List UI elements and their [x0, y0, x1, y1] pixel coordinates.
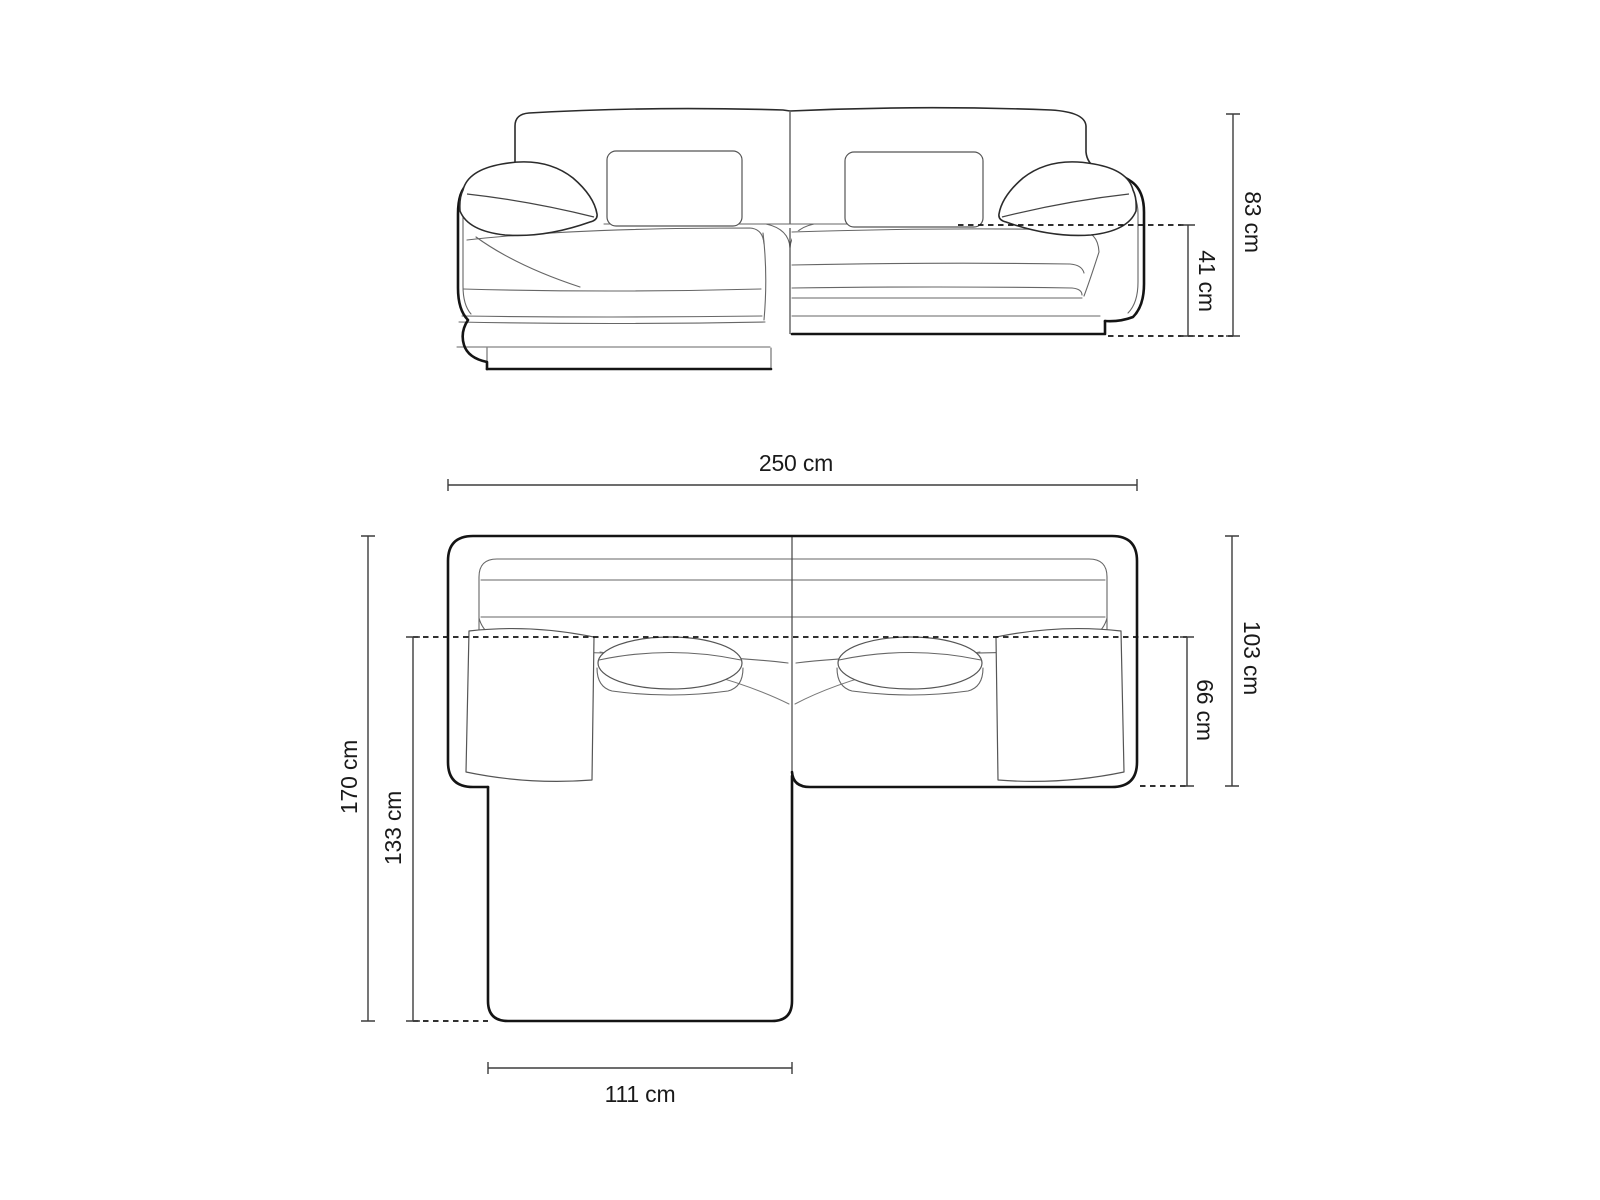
sofa-dimensions-diagram: 83 cm 41 cm	[0, 0, 1600, 1200]
dim-label-chaise-depth: 133 cm	[380, 791, 406, 865]
plan-back-cushion-right	[996, 629, 1124, 782]
dim-body-depth: 103 cm	[1225, 536, 1265, 786]
dim-overall-depth: 170 cm	[336, 536, 375, 1021]
dim-label-overall-depth: 170 cm	[336, 740, 362, 814]
dim-label-overall-width: 250 cm	[759, 450, 833, 476]
dim-chaise-depth: 133 cm	[380, 637, 420, 1021]
dim-seat-height: 41 cm	[1181, 225, 1220, 336]
dim-overall-width: 250 cm	[448, 450, 1137, 491]
right-base	[792, 316, 1105, 334]
sofa-dimension-diagram-page: 83 cm 41 cm	[0, 0, 1600, 1200]
chaise-seat-front	[462, 228, 766, 321]
dim-overall-height: 83 cm	[1226, 114, 1266, 336]
dim-chaise-width: 111 cm	[488, 1062, 792, 1107]
chaise-base	[457, 322, 771, 369]
front-elevation-view: 83 cm 41 cm	[457, 108, 1266, 369]
dim-label-seat-depth: 66 cm	[1192, 679, 1218, 741]
left-armrest-pillow	[460, 162, 597, 236]
dim-label-chaise-width: 111 cm	[605, 1081, 676, 1107]
top-plan-view: 250 cm 170 cm 133 cm 103 cm 66 cm 111 cm	[336, 450, 1265, 1107]
back-cushion-left	[607, 151, 742, 226]
dim-label-body-depth: 103 cm	[1239, 621, 1265, 695]
dim-label-overall-height: 83 cm	[1240, 191, 1266, 253]
dim-label-seat-height: 41 cm	[1194, 250, 1220, 312]
dim-seat-depth: 66 cm	[1180, 637, 1218, 786]
plan-back-cushion-left	[466, 629, 594, 782]
back-cushion-right	[845, 152, 983, 227]
